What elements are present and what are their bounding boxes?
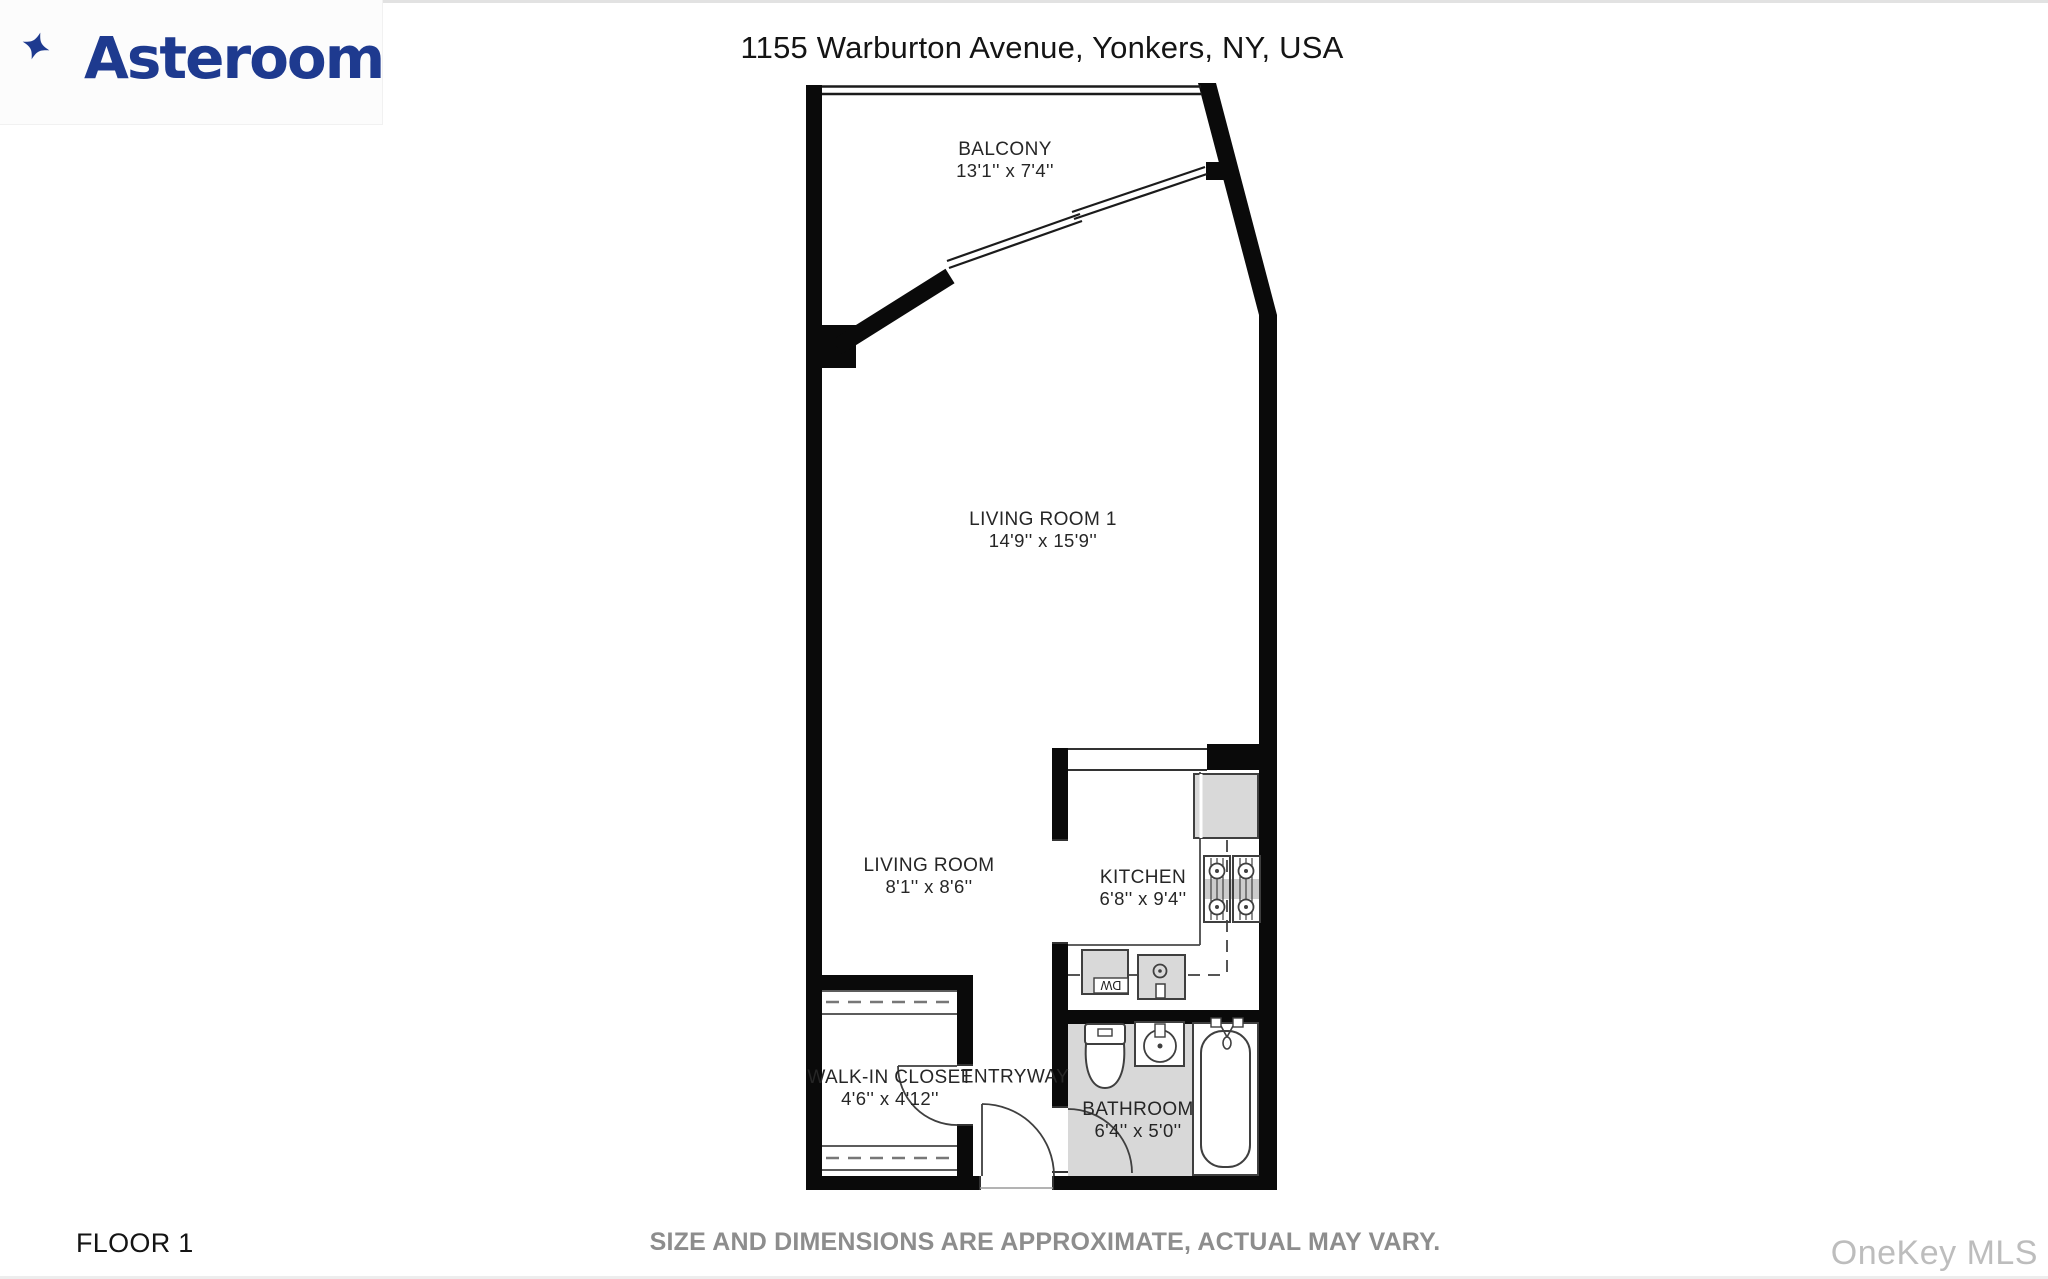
room-label-living-room-1: LIVING ROOM 1 14'9'' x 15'9'' [969,509,1117,551]
room-name: BATHROOM [1082,1099,1194,1120]
refrigerator [1194,774,1258,838]
room-name: BALCONY [956,139,1054,160]
entry-door [982,1104,1054,1176]
room-dims: 14'9'' x 15'9'' [969,530,1117,551]
balcony-railing [822,87,1202,95]
room-label-entryway: ENTRYWAY [961,1067,1069,1088]
dishwasher-label: DW [1100,978,1121,992]
room-dims: 13'1'' x 7'4'' [956,160,1054,181]
room-dims: 4'6'' x 4'12'' [807,1088,972,1109]
room-label-bathroom: BATHROOM 6'4'' x 5'0'' [1082,1099,1194,1141]
room-name: LIVING ROOM 1 [969,509,1117,530]
room-label-walk-in-closet: WALK-IN CLOSET 4'6'' x 4'12'' [807,1067,972,1109]
bathroom-sink [1135,1022,1184,1066]
room-dims: 6'8'' x 9'4'' [1099,888,1186,909]
kitchen-sink [1138,955,1185,999]
dishwasher: DW [1082,950,1128,994]
room-label-balcony: BALCONY 13'1'' x 7'4'' [956,139,1054,181]
room-dims: 8'1'' x 8'6'' [863,876,994,897]
room-label-living-room: LIVING ROOM 8'1'' x 8'6'' [863,855,994,897]
toilet [1085,1024,1125,1088]
bathtub [1193,1018,1258,1175]
floorplan-page: Asteroom 1155 Warburton Avenue, Yonkers,… [0,0,2048,1279]
onekey-mls-watermark: OneKey MLS [1831,1234,2038,1273]
stove [1204,856,1260,922]
size-disclaimer: SIZE AND DIMENSIONS ARE APPROXIMATE, ACT… [42,1228,2048,1257]
room-dims: 6'4'' x 5'0'' [1082,1120,1194,1141]
room-name: LIVING ROOM [863,855,994,876]
room-name: ENTRYWAY [961,1067,1069,1088]
room-label-kitchen: KITCHEN 6'8'' x 9'4'' [1099,867,1186,909]
room-name: WALK-IN CLOSET [807,1067,972,1088]
balcony-diagonal-wall [837,276,950,347]
kitchen-counter-lines [1068,772,1200,945]
room-name: KITCHEN [1099,867,1186,888]
sliding-door [947,167,1207,268]
